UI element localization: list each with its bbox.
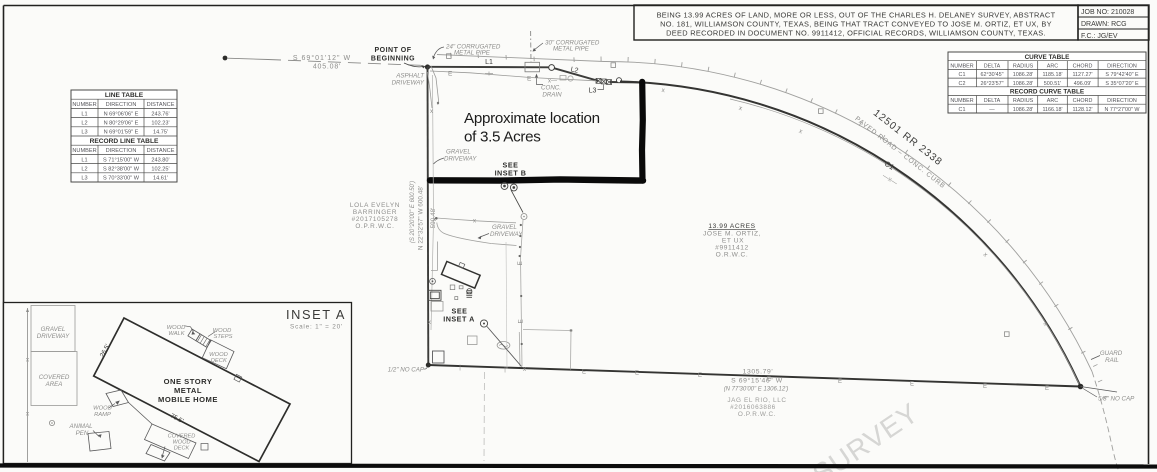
svg-text:S 69°01'12" W: S 69°01'12" W bbox=[293, 54, 351, 62]
svg-text:E: E bbox=[448, 71, 453, 78]
svg-text:AREA: AREA bbox=[45, 381, 63, 388]
svg-text:26°23'57": 26°23'57" bbox=[980, 81, 1003, 87]
svg-text:DRIVEWAY: DRIVEWAY bbox=[444, 156, 477, 163]
svg-text:ARC: ARC bbox=[1047, 63, 1058, 69]
svg-text:NUMBER: NUMBER bbox=[72, 148, 96, 154]
svg-text:L3: L3 bbox=[81, 176, 87, 182]
svg-text:NUMBER: NUMBER bbox=[950, 98, 973, 104]
svg-text:E: E bbox=[1045, 386, 1049, 392]
svg-text:496.09': 496.09' bbox=[1074, 81, 1092, 87]
svg-text:L3: L3 bbox=[589, 88, 597, 95]
svg-text:RADIUS: RADIUS bbox=[1013, 98, 1034, 104]
svg-text:DRAWN: RCG: DRAWN: RCG bbox=[1081, 21, 1127, 28]
svg-text:S 69°15'46" W: S 69°15'46" W bbox=[731, 377, 783, 385]
svg-text:#2016063886: #2016063886 bbox=[730, 404, 776, 411]
svg-text:DIRECTION: DIRECTION bbox=[1107, 98, 1137, 104]
svg-text:1166.18': 1166.18' bbox=[1042, 107, 1062, 113]
svg-text:BEGINNING: BEGINNING bbox=[371, 56, 415, 63]
svg-text:NUMBER: NUMBER bbox=[950, 63, 973, 69]
svg-text:E: E bbox=[582, 370, 586, 376]
svg-text:102.23': 102.23' bbox=[151, 121, 169, 127]
svg-text:#2017105278: #2017105278 bbox=[352, 216, 399, 223]
svg-text:DISTANCE: DISTANCE bbox=[147, 102, 175, 108]
svg-text:102.25': 102.25' bbox=[151, 167, 169, 173]
svg-text:E: E bbox=[983, 384, 987, 390]
svg-text:500.51': 500.51' bbox=[1044, 81, 1062, 87]
svg-text:DELTA: DELTA bbox=[984, 63, 1001, 69]
svg-text:CONC.: CONC. bbox=[541, 85, 561, 92]
svg-text:DIRECTION: DIRECTION bbox=[1107, 63, 1137, 69]
svg-text:RAIL: RAIL bbox=[1105, 357, 1119, 364]
svg-text:1086.28': 1086.28' bbox=[1013, 72, 1034, 78]
svg-text:O.P.R.W.C.: O.P.R.W.C. bbox=[355, 223, 394, 230]
svg-text:COVERED: COVERED bbox=[39, 374, 70, 381]
svg-text:ARC: ARC bbox=[1047, 98, 1058, 104]
svg-text:14.61': 14.61' bbox=[153, 176, 168, 182]
svg-text:243.80': 243.80' bbox=[151, 157, 169, 163]
svg-text:NUMBER: NUMBER bbox=[72, 102, 96, 108]
svg-text:L1: L1 bbox=[485, 59, 493, 66]
svg-text:DECK: DECK bbox=[211, 358, 228, 364]
svg-text:DELTA: DELTA bbox=[984, 98, 1001, 104]
svg-text:CHORD: CHORD bbox=[1073, 63, 1093, 69]
svg-text:INSET B: INSET B bbox=[495, 169, 527, 178]
svg-text:1/2" NO CAP: 1/2" NO CAP bbox=[388, 367, 425, 374]
svg-text:5/8" NO CAP: 5/8" NO CAP bbox=[1098, 396, 1135, 403]
svg-text:13.99 ACRES: 13.99 ACRES bbox=[708, 223, 755, 230]
svg-text:DECK: DECK bbox=[174, 446, 190, 452]
svg-text:62°30'45": 62°30'45" bbox=[980, 72, 1003, 78]
svg-text:L2: L2 bbox=[81, 167, 87, 173]
svg-text:DEED RECORDED IN DOCUMENT NO.: DEED RECORDED IN DOCUMENT NO. 9911412, O… bbox=[666, 29, 1046, 38]
svg-text:BEING 13.99 ACRES OF LAND, MOR: BEING 13.99 ACRES OF LAND, MORE OR LESS,… bbox=[657, 11, 1056, 20]
svg-text:E: E bbox=[518, 319, 525, 324]
svg-text:14.75': 14.75' bbox=[153, 130, 168, 136]
svg-text:DIRECTION: DIRECTION bbox=[106, 148, 137, 154]
svg-text:E: E bbox=[517, 261, 524, 266]
svg-text:ONE STORY: ONE STORY bbox=[164, 377, 213, 386]
svg-text:1086.28': 1086.28' bbox=[1013, 81, 1034, 87]
svg-text:#9911412: #9911412 bbox=[715, 245, 749, 252]
svg-text:JAG EL RIO, LLC: JAG EL RIO, LLC bbox=[727, 397, 786, 404]
svg-text:BARRINGER: BARRINGER bbox=[353, 209, 397, 216]
svg-text:STEPS: STEPS bbox=[213, 334, 232, 340]
svg-text:(S 20°20'00" E 600.50'): (S 20°20'00" E 600.50') bbox=[410, 181, 416, 243]
svg-text:S 70°33'00" W: S 70°33'00" W bbox=[103, 176, 140, 182]
svg-text:ASPHALT: ASPHALT bbox=[395, 73, 425, 80]
svg-text:METAL: METAL bbox=[174, 386, 202, 395]
svg-text:C2: C2 bbox=[959, 81, 966, 87]
svg-text:ET UX: ET UX bbox=[722, 238, 744, 245]
svg-text:DIRECTION: DIRECTION bbox=[106, 102, 137, 108]
svg-text:N 69°06'06" E: N 69°06'06" E bbox=[104, 111, 139, 117]
svg-text:PEN: PEN bbox=[76, 430, 89, 437]
svg-text:x: x bbox=[428, 320, 431, 326]
svg-text:RECORD CURVE TABLE: RECORD CURVE TABLE bbox=[1010, 89, 1085, 96]
svg-text:E: E bbox=[635, 371, 639, 377]
svg-text:1305.79': 1305.79' bbox=[743, 369, 774, 376]
svg-text:1127.27': 1127.27' bbox=[1072, 72, 1092, 78]
svg-text:NO. 181, WILLIAMSON COUNTY, TE: NO. 181, WILLIAMSON COUNTY, TEXAS, BEING… bbox=[660, 20, 1052, 29]
svg-text:DRIVEWAY: DRIVEWAY bbox=[490, 231, 523, 238]
svg-text:WALK: WALK bbox=[168, 331, 185, 337]
svg-text:N 69°01'59" E: N 69°01'59" E bbox=[104, 130, 139, 136]
svg-text:S 71°15'00" W: S 71°15'00" W bbox=[103, 157, 140, 163]
svg-text:DRAIN: DRAIN bbox=[542, 92, 562, 99]
svg-text:DISTANCE: DISTANCE bbox=[147, 148, 175, 154]
svg-text:L1: L1 bbox=[81, 111, 87, 117]
svg-text:N 80°29'06" E: N 80°29'06" E bbox=[104, 121, 139, 127]
svg-text:S 79°42'40" E: S 79°42'40" E bbox=[1105, 72, 1139, 78]
svg-text:405.08': 405.08' bbox=[313, 64, 341, 71]
svg-text:1128.12': 1128.12' bbox=[1072, 107, 1092, 113]
svg-text:E: E bbox=[910, 382, 914, 388]
svg-text:L2: L2 bbox=[81, 121, 87, 127]
svg-text:—: — bbox=[989, 107, 995, 113]
svg-text:1086.28': 1086.28' bbox=[1013, 107, 1034, 113]
svg-text:METAL PIPE: METAL PIPE bbox=[553, 46, 590, 53]
svg-text:METAL PIPE: METAL PIPE bbox=[454, 49, 491, 56]
svg-text:POINT OF: POINT OF bbox=[374, 47, 411, 54]
svg-text:Approximate location: Approximate location bbox=[464, 110, 600, 127]
svg-text:INSET A: INSET A bbox=[286, 307, 346, 322]
svg-text:ANIMAL: ANIMAL bbox=[68, 423, 93, 430]
svg-text:N 77°27'00" W: N 77°27'00" W bbox=[1104, 107, 1140, 113]
svg-text:(N 77'30'00" E 1306.12'): (N 77'30'00" E 1306.12') bbox=[724, 387, 789, 393]
svg-text:C1: C1 bbox=[959, 107, 966, 113]
svg-text:DRIVEWAY: DRIVEWAY bbox=[392, 80, 425, 87]
svg-text:RADIUS: RADIUS bbox=[1013, 63, 1034, 69]
svg-text:C1: C1 bbox=[959, 72, 966, 78]
svg-text:x: x bbox=[523, 367, 526, 373]
svg-text:S 35°07'20" E: S 35°07'20" E bbox=[1105, 81, 1139, 87]
svg-text:WOOD: WOOD bbox=[209, 352, 228, 358]
svg-text:RECORD LINE TABLE: RECORD LINE TABLE bbox=[90, 138, 159, 145]
svg-text:RAMP: RAMP bbox=[94, 412, 111, 418]
svg-text:L1: L1 bbox=[81, 157, 87, 163]
svg-text:INSET A: INSET A bbox=[443, 315, 475, 324]
svg-text:of 3.5 Acres: of 3.5 Acres bbox=[464, 129, 541, 146]
svg-text:F.C.: JG/EV: F.C.: JG/EV bbox=[1081, 33, 1118, 40]
svg-text:JOB NO: 210028: JOB NO: 210028 bbox=[1081, 9, 1134, 16]
svg-text:x: x bbox=[430, 109, 433, 115]
svg-text:E: E bbox=[698, 373, 702, 379]
svg-text:L3: L3 bbox=[81, 130, 87, 136]
svg-text:Scale: 1" = 20': Scale: 1" = 20' bbox=[290, 324, 343, 331]
svg-text:CHORD: CHORD bbox=[1073, 98, 1093, 104]
svg-text:JOSE M. ORTIZ,: JOSE M. ORTIZ, bbox=[703, 231, 761, 238]
svg-text:GRAVEL: GRAVEL bbox=[492, 224, 517, 231]
svg-text:E: E bbox=[527, 76, 532, 83]
svg-text:N 22°32'57" W 600.48': N 22°32'57" W 600.48' bbox=[417, 186, 425, 250]
svg-text:LINE TABLE: LINE TABLE bbox=[105, 92, 144, 99]
svg-text:x—: x— bbox=[548, 79, 557, 85]
svg-text:S 82°38'00" W: S 82°38'00" W bbox=[103, 167, 140, 173]
svg-text:MOBILE HOME: MOBILE HOME bbox=[158, 395, 218, 404]
svg-text:E: E bbox=[838, 379, 842, 385]
svg-text:WOOD: WOOD bbox=[93, 406, 112, 412]
svg-text:GRAVEL: GRAVEL bbox=[446, 149, 471, 156]
svg-text:LOLA EVELYN: LOLA EVELYN bbox=[350, 202, 400, 209]
svg-text:CURVE TABLE: CURVE TABLE bbox=[1025, 54, 1071, 61]
svg-text:GRAVEL: GRAVEL bbox=[41, 326, 66, 333]
svg-text:x: x bbox=[473, 219, 476, 225]
svg-text:GUARD: GUARD bbox=[1100, 350, 1123, 357]
svg-text:O.R.W.C.: O.R.W.C. bbox=[716, 252, 749, 259]
svg-text:1185.18': 1185.18' bbox=[1042, 72, 1062, 78]
svg-text:O.P.R.W.C.: O.P.R.W.C. bbox=[738, 411, 776, 418]
svg-text:243.76': 243.76' bbox=[151, 111, 169, 117]
svg-text:DRIVEWAY: DRIVEWAY bbox=[37, 333, 70, 340]
